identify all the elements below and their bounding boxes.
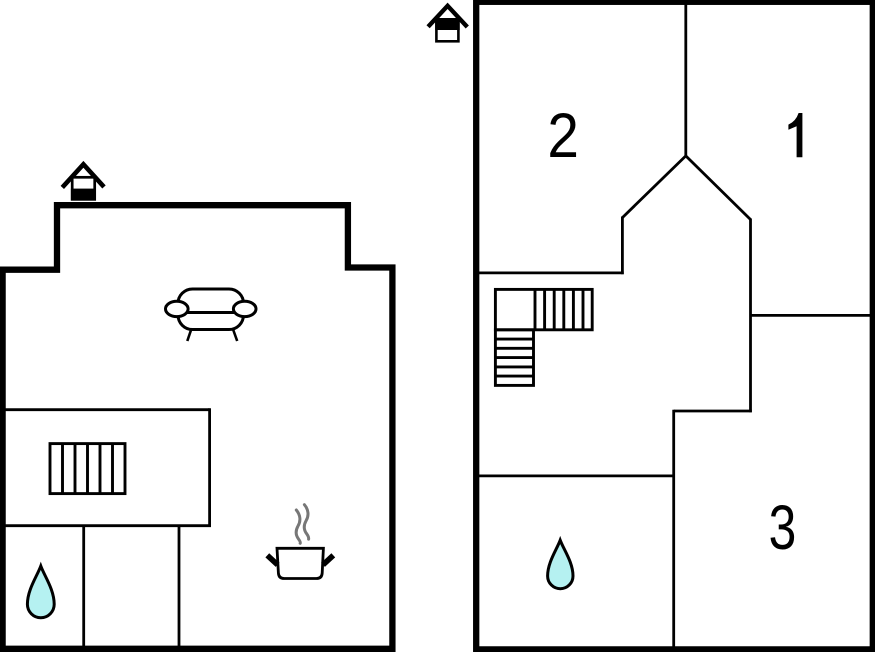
svg-text:2: 2 xyxy=(547,100,579,170)
svg-text:3: 3 xyxy=(769,494,797,564)
